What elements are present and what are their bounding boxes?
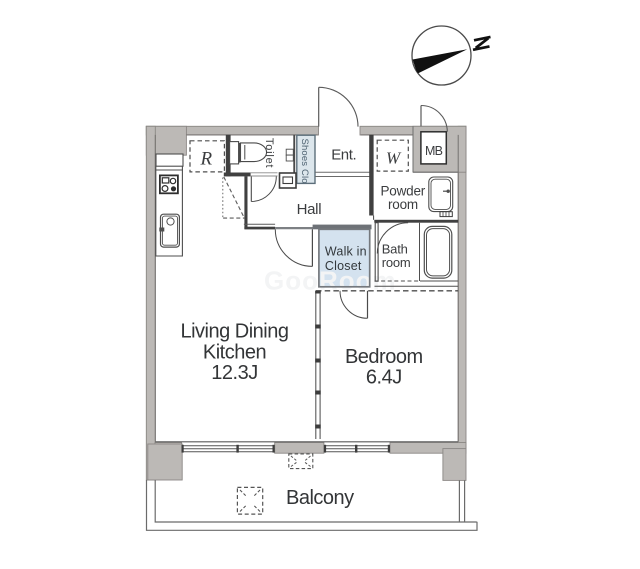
svg-text:MB: MB [425,144,443,158]
svg-text:Toilet: Toilet [263,138,275,168]
svg-text:12.3J: 12.3J [211,362,257,384]
svg-text:Shoes Clo: Shoes Clo [299,139,310,184]
svg-text:Balcony: Balcony [286,487,354,509]
svg-text:Bedroom: Bedroom [345,346,423,368]
svg-text:room: room [382,255,411,270]
svg-text:Ent.: Ent. [331,146,356,163]
svg-text:W: W [386,148,402,167]
svg-text:Kitchen: Kitchen [203,342,266,364]
svg-text:Hall: Hall [297,201,322,218]
svg-text:Walk in: Walk in [325,245,367,259]
svg-text:6.4J: 6.4J [366,366,402,388]
svg-text:Closet: Closet [325,259,362,273]
svg-text:R: R [200,149,213,170]
svg-text:room: room [388,197,418,212]
svg-text:Living Dining: Living Dining [180,320,288,342]
